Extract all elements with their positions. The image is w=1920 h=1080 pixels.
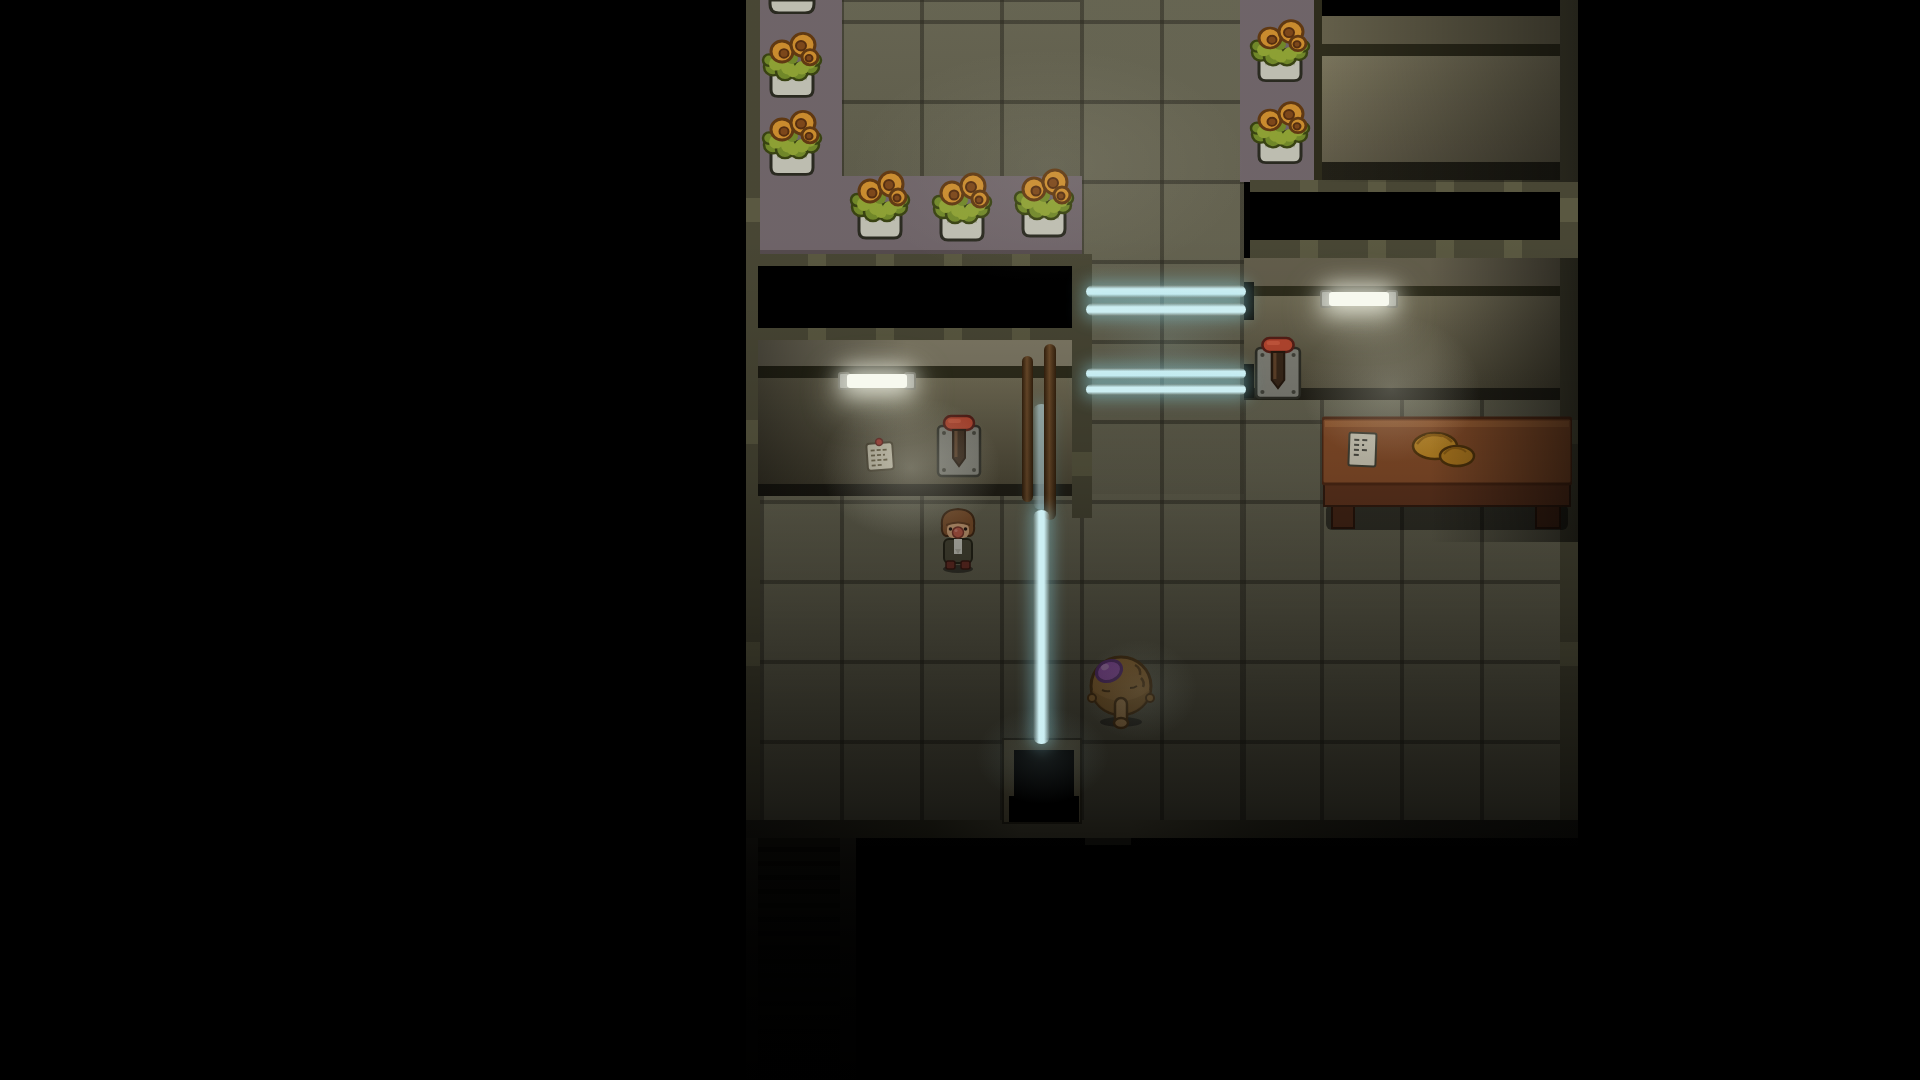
- light-glow: [786, 368, 1036, 568]
- shade-alcove: [1320, 0, 1578, 182]
- game-viewport[interactable]: [0, 0, 1920, 1080]
- mask-right: [1578, 0, 1920, 1080]
- mask-left: [0, 0, 746, 1080]
- light-glow: [1060, 620, 1220, 760]
- light-glow: [1076, 258, 1261, 423]
